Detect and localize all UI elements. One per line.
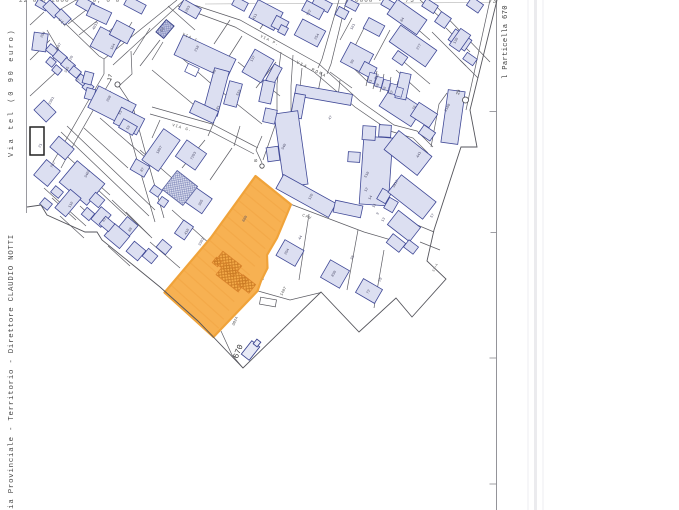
svg-text:Via tel (0 90 euro): Via tel (0 90 euro) (8, 28, 16, 157)
svg-text:l Particella 670: l Particella 670 (502, 5, 510, 79)
svg-text:cia Provinciale - Territorio -: cia Provinciale - Territorio - Direttore… (8, 234, 16, 510)
